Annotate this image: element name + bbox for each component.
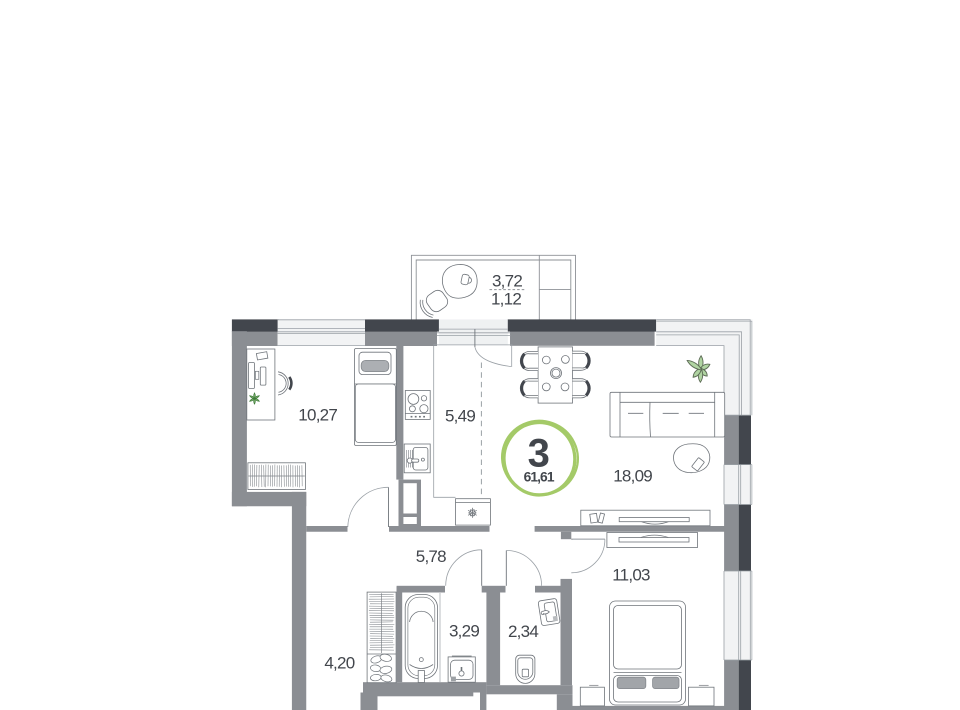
svg-text:18,09: 18,09: [613, 467, 652, 486]
svg-text:61,61: 61,61: [524, 470, 555, 485]
svg-text:2,34: 2,34: [508, 622, 538, 641]
svg-text:5,78: 5,78: [416, 547, 446, 566]
svg-text:5,49: 5,49: [445, 407, 475, 426]
svg-text:10,27: 10,27: [298, 405, 337, 424]
svg-text:4,20: 4,20: [324, 654, 354, 673]
svg-text:3,72: 3,72: [492, 272, 522, 291]
svg-text:11,03: 11,03: [612, 565, 650, 584]
svg-text:1,12: 1,12: [491, 290, 521, 309]
svg-text:3,29: 3,29: [449, 622, 479, 641]
